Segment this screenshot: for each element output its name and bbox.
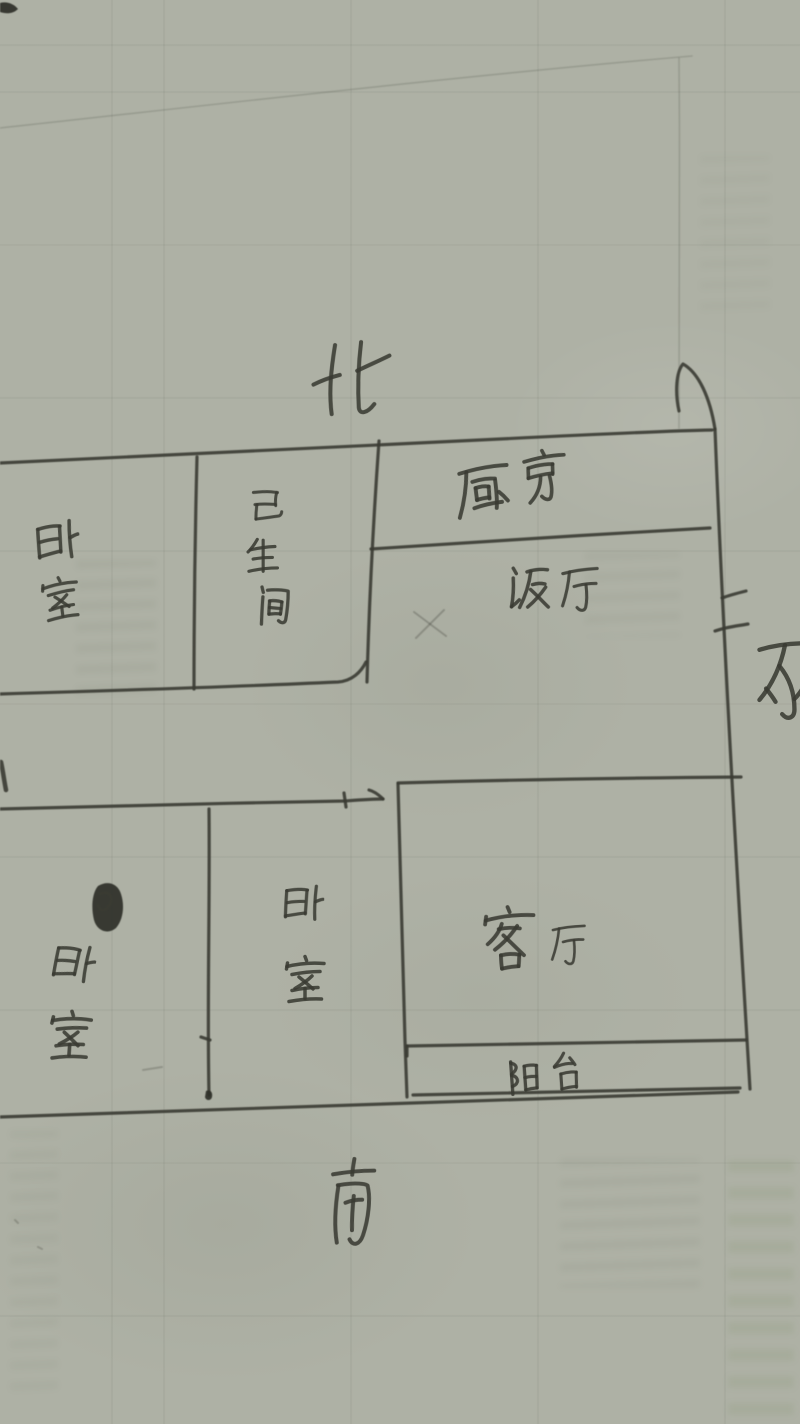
left-edge-mark xyxy=(1,762,6,790)
living-room-top-wall xyxy=(398,777,741,783)
south-wall xyxy=(0,1092,738,1117)
paper-photo: 北 南 东 xyxy=(0,0,800,1424)
balcony-top-line xyxy=(407,1040,746,1046)
lower-section-north-wall xyxy=(0,799,383,809)
window-mark xyxy=(722,591,746,598)
east-wall xyxy=(715,429,750,1089)
north-wall xyxy=(0,430,712,463)
bedroom-bathroom-divider xyxy=(194,457,197,689)
pencil-speck xyxy=(15,1220,18,1223)
bathroom-right-wall xyxy=(367,441,379,682)
window-mark xyxy=(715,624,748,631)
ink-pool xyxy=(205,1090,212,1100)
corner-smudge xyxy=(0,2,18,13)
kitchen-dining-divider xyxy=(371,528,710,549)
upper-section-south-wall xyxy=(0,662,366,694)
floorplan-walls xyxy=(0,0,800,1424)
bedroom-divider xyxy=(208,809,209,1095)
northeast-corner-hook xyxy=(677,364,715,429)
paper-crease xyxy=(0,56,692,128)
wall-tick xyxy=(344,793,346,807)
pencil-speck xyxy=(143,1067,162,1070)
pencil-x-mark xyxy=(416,610,444,638)
pencil-speck xyxy=(38,1247,42,1249)
